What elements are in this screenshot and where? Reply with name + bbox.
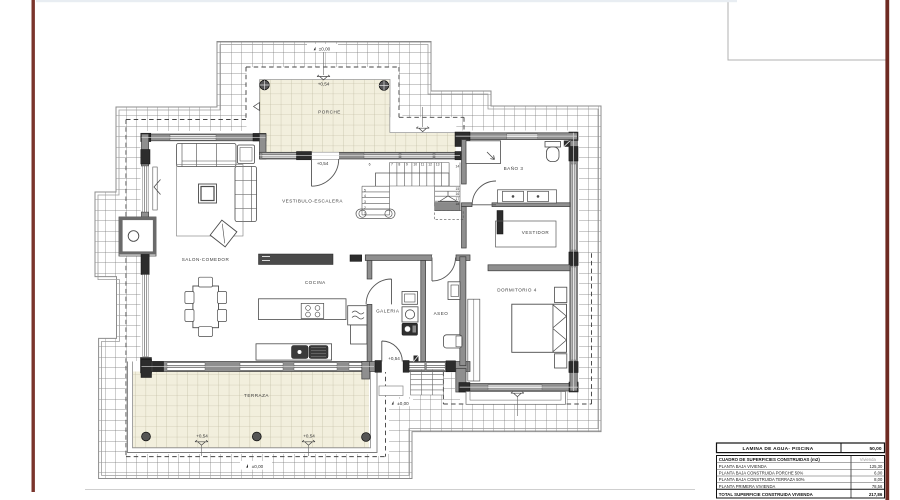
svg-text:78,56: 78,56 bbox=[872, 484, 883, 489]
svg-text:LAMINA DE AGUA- PISCINA: LAMINA DE AGUA- PISCINA bbox=[742, 446, 813, 452]
svg-text:13: 13 bbox=[436, 163, 440, 167]
svg-text:3: 3 bbox=[364, 200, 366, 204]
svg-text:±0,00: ±0,00 bbox=[319, 47, 331, 52]
svg-text:1: 1 bbox=[364, 212, 366, 216]
svg-text:DORMITORIO 4: DORMITORIO 4 bbox=[497, 288, 537, 293]
svg-text:125,30: 125,30 bbox=[869, 464, 882, 469]
svg-text:6,00: 6,00 bbox=[874, 471, 883, 476]
svg-text:VESTIDOR: VESTIDOR bbox=[522, 230, 550, 235]
svg-text:+0,54: +0,54 bbox=[388, 356, 400, 361]
svg-text:COCINA: COCINA bbox=[305, 280, 326, 285]
svg-text:+0,54: +0,54 bbox=[196, 434, 208, 439]
svg-text:VESTIBULO-ESCALERA: VESTIBULO-ESCALERA bbox=[282, 199, 343, 204]
svg-text:CUADRO DE SUPERFICIES CONSTRUI: CUADRO DE SUPERFICIES CONSTRUIDAS (m2) bbox=[719, 457, 821, 462]
svg-text:217,86: 217,86 bbox=[869, 492, 883, 497]
svg-text:PLANTA BAJA CONSTRUIDA TERRAZA: PLANTA BAJA CONSTRUIDA TERRAZA 50% bbox=[719, 477, 805, 482]
svg-text:50,00: 50,00 bbox=[869, 446, 881, 452]
svg-text:5: 5 bbox=[364, 189, 366, 193]
svg-text:18: 18 bbox=[456, 202, 460, 206]
svg-text:+0,54: +0,54 bbox=[303, 434, 315, 439]
svg-text:PLANTA PRIMERA VIVIENDA: PLANTA PRIMERA VIVIENDA bbox=[719, 484, 776, 489]
svg-text:2: 2 bbox=[364, 206, 366, 210]
svg-text:PLANTA BAJA VIVIENDA: PLANTA BAJA VIVIENDA bbox=[719, 464, 767, 469]
svg-text:9: 9 bbox=[406, 163, 408, 167]
svg-text:+0,54: +0,54 bbox=[317, 161, 329, 166]
svg-text:TERRAZA: TERRAZA bbox=[244, 393, 269, 398]
svg-text:12: 12 bbox=[428, 163, 432, 167]
svg-text:17: 17 bbox=[456, 197, 460, 201]
svg-text:SALON-COMEDOR: SALON-COMEDOR bbox=[182, 257, 230, 262]
svg-text:GALERIA: GALERIA bbox=[376, 309, 400, 314]
svg-text:16: 16 bbox=[456, 192, 460, 196]
svg-text:7: 7 bbox=[391, 163, 393, 167]
svg-text:8,00: 8,00 bbox=[874, 477, 883, 482]
svg-text:TOTAL SUPERFICIE CONSTRUIDA VI: TOTAL SUPERFICIE CONSTRUIDA VIVIENDA bbox=[719, 492, 814, 497]
svg-text:8: 8 bbox=[398, 163, 400, 167]
svg-text:14: 14 bbox=[456, 165, 460, 169]
svg-text:6: 6 bbox=[369, 163, 371, 167]
svg-text:PORCHE: PORCHE bbox=[318, 110, 341, 115]
svg-text:11: 11 bbox=[421, 163, 425, 167]
svg-text:±0,00: ±0,00 bbox=[252, 464, 264, 469]
svg-text:PLANTA BAJA CONSTRUIDA PORCHE: PLANTA BAJA CONSTRUIDA PORCHE 50% bbox=[719, 471, 804, 476]
svg-text:BAÑO 3: BAÑO 3 bbox=[504, 165, 524, 171]
svg-text:4: 4 bbox=[364, 194, 366, 198]
svg-text:+0,54: +0,54 bbox=[318, 82, 330, 87]
svg-text:Vivienda: Vivienda bbox=[860, 457, 877, 462]
svg-text:±0,00: ±0,00 bbox=[397, 401, 409, 406]
svg-text:15: 15 bbox=[456, 187, 460, 191]
svg-text:ASEO: ASEO bbox=[434, 311, 449, 316]
svg-text:10: 10 bbox=[413, 163, 417, 167]
